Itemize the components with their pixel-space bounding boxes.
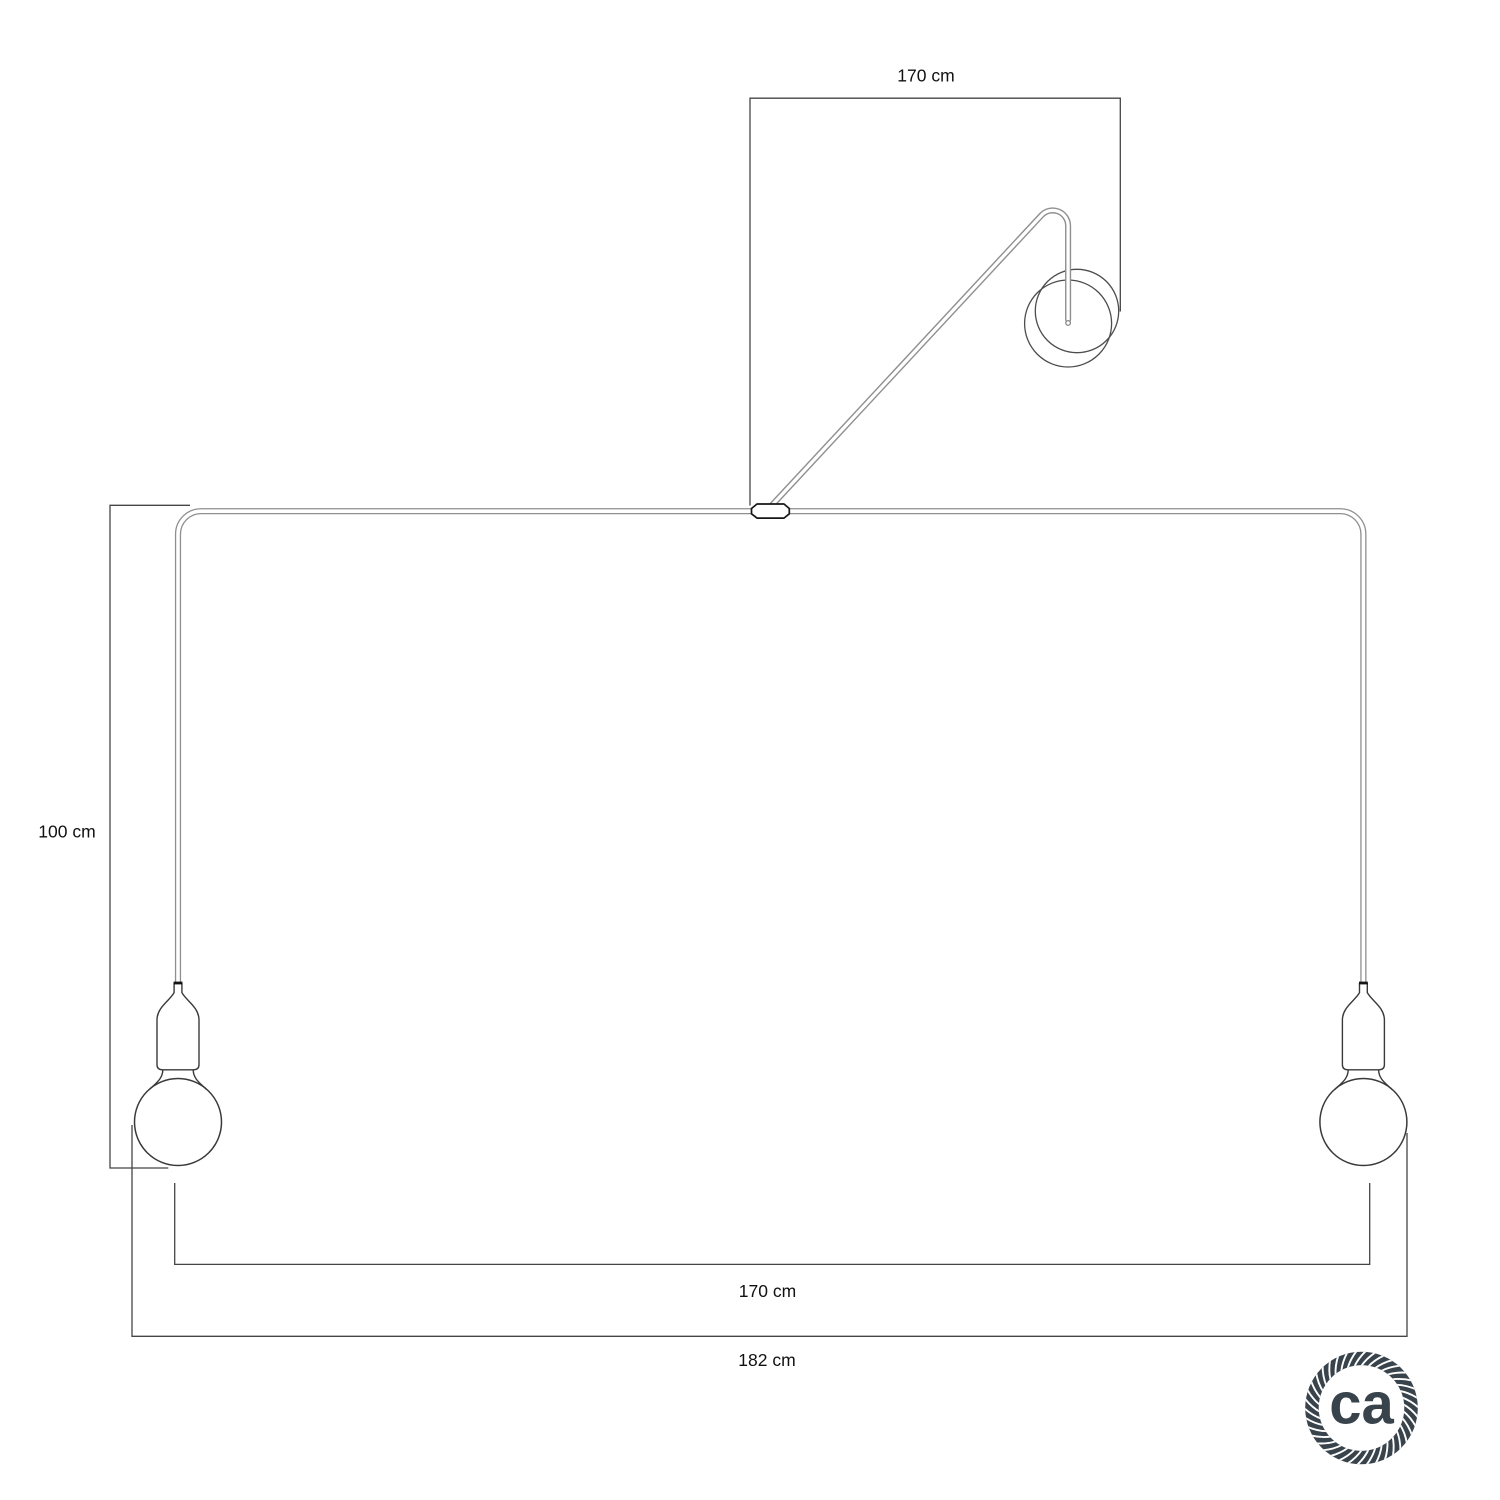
svg-text:170 cm: 170 cm [897, 66, 954, 86]
svg-text:ca: ca [1329, 1372, 1394, 1437]
svg-text:182 cm: 182 cm [738, 1350, 795, 1370]
svg-text:100 cm: 100 cm [38, 822, 95, 842]
svg-text:170 cm: 170 cm [739, 1281, 796, 1301]
